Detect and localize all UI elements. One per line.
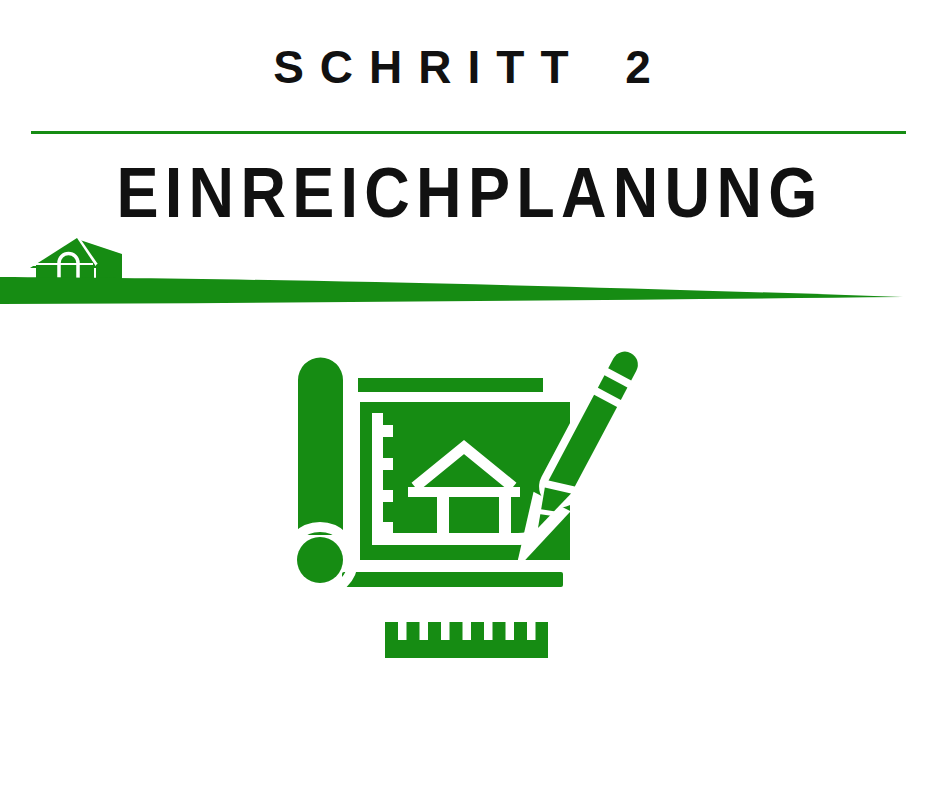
blueprint-pencil-icon: [280, 340, 660, 670]
hill-swoosh-icon: [0, 230, 940, 310]
ruler-icon: [385, 622, 548, 658]
blueprint-pencil-svg: [280, 340, 660, 670]
hill-swoosh-graphic: [0, 230, 940, 310]
green-divider-line: [31, 131, 906, 134]
house-icon: [30, 238, 122, 279]
page-title: EINREICHPLANUNG: [47, 158, 893, 228]
step-label: SCHRITT 2: [0, 44, 940, 90]
